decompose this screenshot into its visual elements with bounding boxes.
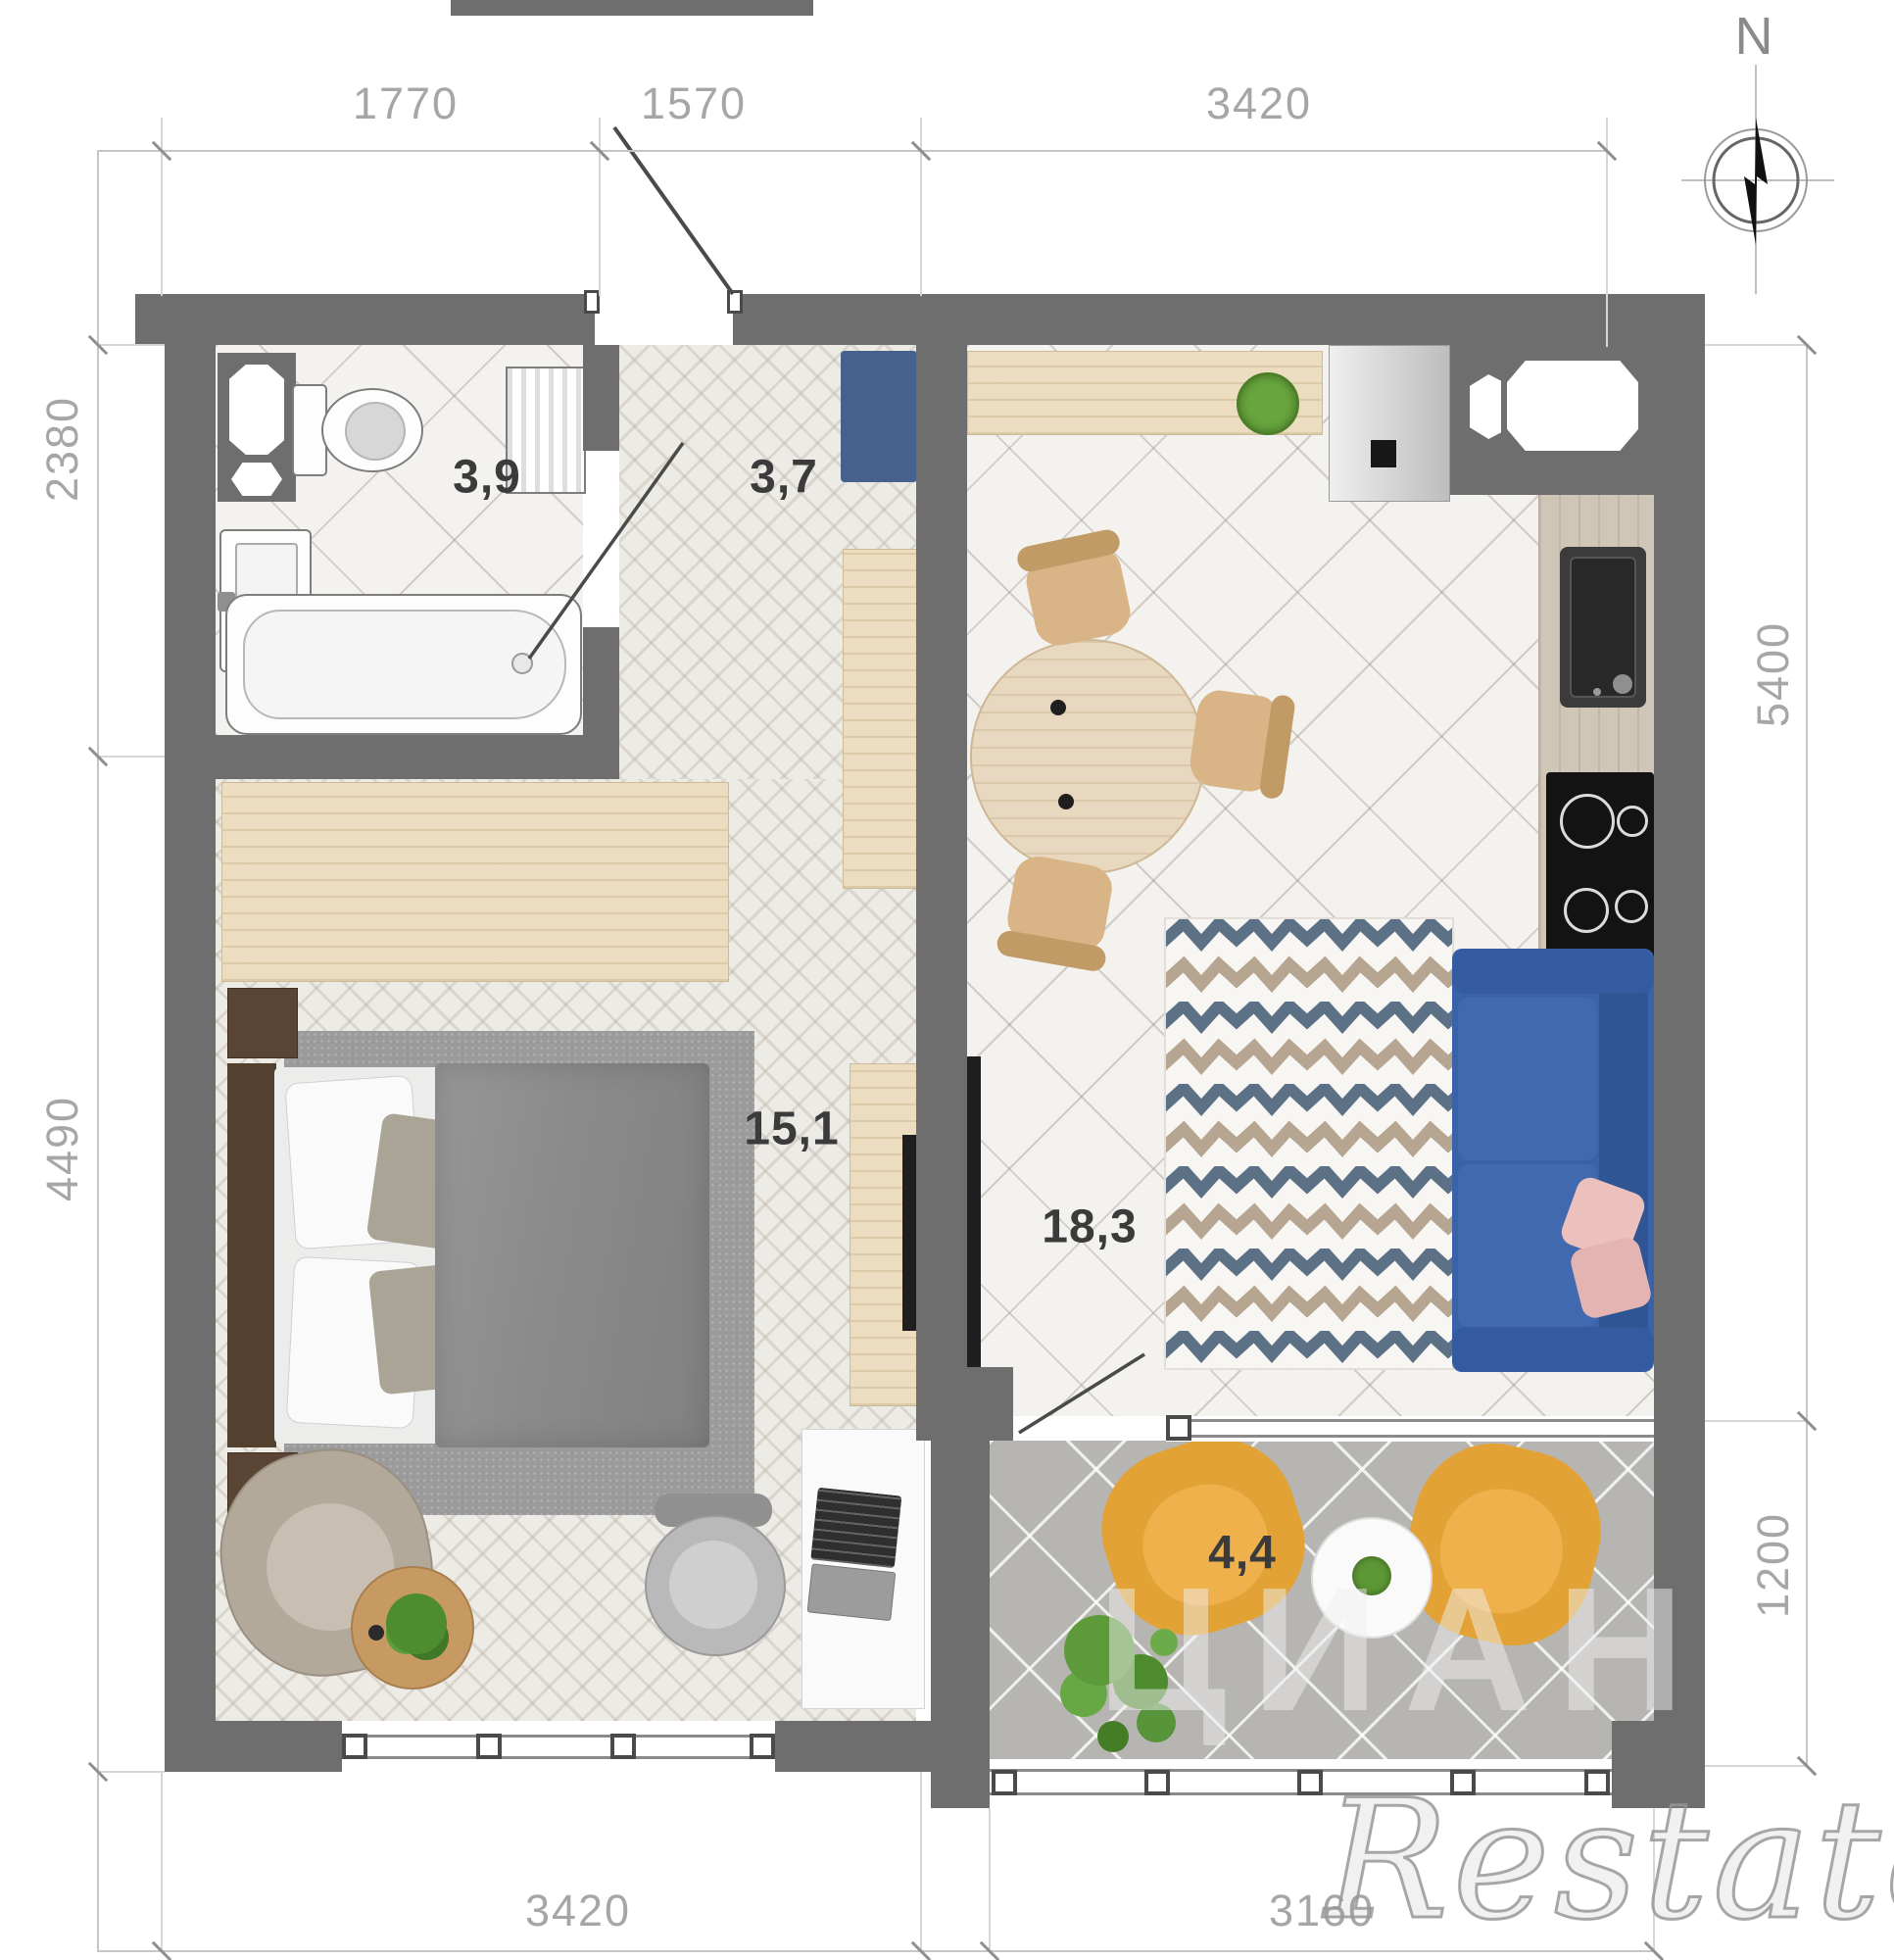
- watermark-portal: ЦИАН: [1097, 1548, 1710, 1751]
- dim-right-1200: 1200: [1748, 1512, 1799, 1618]
- ext-line: [599, 118, 601, 296]
- dim-right-5400: 5400: [1748, 621, 1799, 727]
- entrance-door-leaf: [614, 127, 733, 294]
- ext-line: [98, 756, 165, 758]
- ext-line: [1705, 344, 1807, 346]
- dim-left-4490: 4490: [37, 1096, 88, 1201]
- watermark-agency: Restate: [1325, 1764, 1894, 1956]
- dim-top-1570: 1570: [641, 78, 747, 129]
- balcony-door-leaf: [1019, 1354, 1144, 1433]
- ext-line: [161, 1772, 163, 1950]
- dim-top-1770: 1770: [353, 78, 459, 129]
- hallway-area-label: 3,7: [750, 451, 818, 505]
- ext-line: [989, 1808, 991, 1950]
- ext-line: [98, 1771, 165, 1773]
- compass-icon: [1658, 8, 1864, 302]
- dim-bottom-3420: 3420: [525, 1886, 631, 1936]
- dim-left-2380: 2380: [37, 396, 88, 502]
- bathroom-door-leaf: [529, 443, 683, 659]
- ext-line: [161, 118, 163, 296]
- bathroom-area-label: 3,9: [453, 451, 521, 505]
- ext-line: [1705, 1420, 1807, 1422]
- dim-line-right: [1806, 345, 1808, 1766]
- living-area-label: 18,3: [1042, 1200, 1137, 1254]
- dim-line-top: [98, 150, 1607, 152]
- dim-top-3420: 3420: [1206, 78, 1312, 129]
- dim-line-left: [97, 150, 99, 1952]
- bedroom-area-label: 15,1: [744, 1102, 839, 1156]
- floor-plan: 3,9 3,7 15,1 18,3 4,4 1770 1570 3420 238…: [0, 0, 1894, 1960]
- ext-line: [920, 118, 922, 296]
- ext-line: [920, 1772, 922, 1950]
- ext-line: [98, 344, 165, 346]
